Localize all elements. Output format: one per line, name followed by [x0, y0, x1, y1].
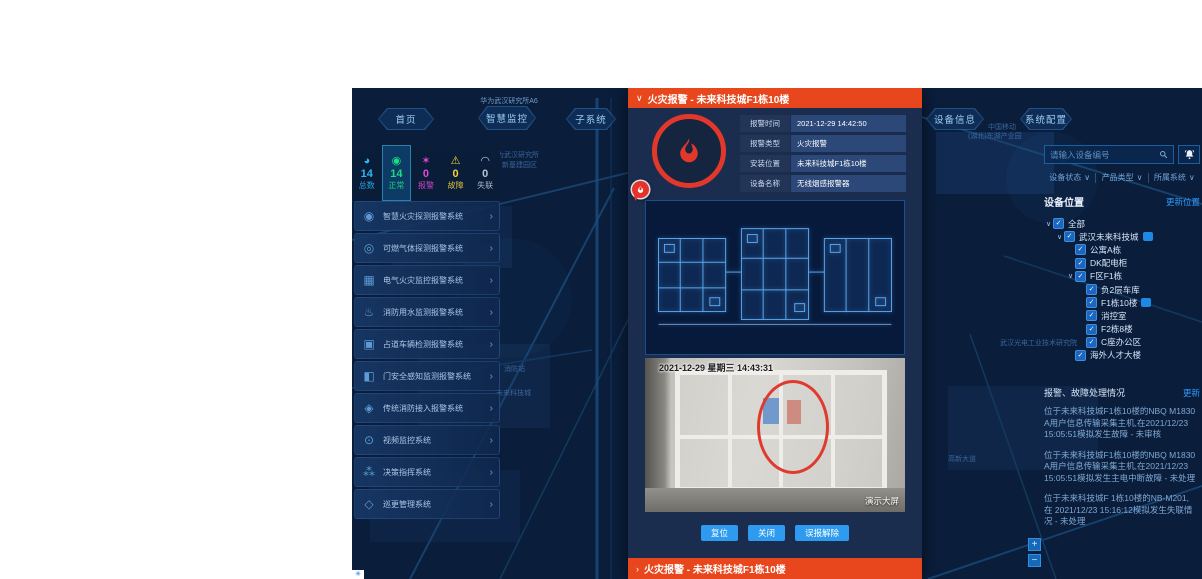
tree-checkbox[interactable]: ✓	[1075, 271, 1086, 282]
nav-home-button[interactable]: 首页	[378, 108, 434, 130]
map-place-label: 未来科技城	[496, 388, 531, 398]
device-location-title: 设备位置	[1044, 194, 1084, 209]
chevron-right-icon: ›	[490, 435, 493, 446]
status-section-title: 报警、故障处理情况	[1044, 386, 1125, 399]
alarm-map-pin[interactable]	[632, 181, 649, 198]
chevron-right-icon: ›	[490, 371, 493, 382]
electric-panel-icon: ▦	[361, 273, 377, 287]
info-row: 报警时间2021-12-29 14:42:50	[740, 115, 906, 132]
tree-node[interactable]: ✓负2层车库	[1044, 283, 1200, 296]
system-label: 传统消防接入报警系统	[383, 403, 484, 414]
stat-label: 总数	[359, 181, 375, 191]
chevron-right-icon: ›	[490, 243, 493, 254]
gas-detector-icon: ◎	[361, 241, 377, 255]
nav-monitor-button[interactable]: 智慧监控	[478, 106, 536, 130]
chevron-right-icon: ›	[490, 307, 493, 318]
camera-snapshot[interactable]: 2021-12-29 星期三 14:43:31 演示大屏	[645, 358, 905, 512]
collapse-caret-icon: ∨	[636, 93, 643, 104]
stat-value: 14	[361, 168, 373, 180]
device-filters: 设备状态∨产品类型∨所属系统∨	[1044, 172, 1200, 183]
camera-icon: ⊙	[361, 433, 377, 447]
stat-alarm[interactable]: ✶0报警	[411, 145, 441, 201]
info-value: 无线烟感报警器	[791, 175, 906, 192]
caret-down-icon: ∨	[1066, 272, 1075, 280]
nav-subsystem-label: 子系统	[567, 109, 615, 129]
search-placeholder: 请输入设备编号	[1050, 149, 1110, 161]
stat-label: 报警	[418, 181, 434, 191]
command-icon: ⁂	[361, 465, 377, 479]
tree-checkbox[interactable]: ✓	[1086, 324, 1097, 335]
hydrant-icon: ◈	[361, 401, 377, 415]
tree-node-label: 负2层车库	[1101, 284, 1140, 296]
alarm-action-buttons: 复位关闭误报解除	[628, 525, 922, 541]
filter-label: 产品类型	[1102, 172, 1134, 183]
caret-down-icon: ∨	[1137, 173, 1143, 182]
tree-checkbox[interactable]: ✓	[1075, 244, 1086, 255]
subsystem-list: ◉智慧火灾探测报警系统›◎可燃气体探测报警系统›▦电气火灾监控报警系统›♨消防用…	[354, 201, 500, 521]
tree-node[interactable]: ✓消控室	[1044, 309, 1200, 322]
stat-fault[interactable]: ⚠0故障	[441, 145, 471, 201]
patrol-icon: ◇	[361, 497, 377, 511]
chevron-right-icon: ›	[490, 275, 493, 286]
tree-node-label: 全部	[1068, 218, 1085, 230]
alarm-info-table: 报警时间2021-12-29 14:42:50报警类型火灾报警安装位置未来科技城…	[740, 115, 906, 192]
nav-subsystem-button[interactable]: 子系统	[566, 108, 616, 130]
nav-home-label: 首页	[379, 109, 433, 129]
caret-down-icon: ∨	[1044, 220, 1053, 228]
tree-checkbox[interactable]: ✓	[1075, 258, 1086, 269]
fire-monitoring-app: 华为武汉研究所新基建园区中国移动(湖北)东湖产业园消防站未来科技城武汉光电工业技…	[352, 88, 1202, 579]
tree-node-label: F1栋10楼	[1101, 297, 1137, 309]
chevron-right-icon: ›	[490, 499, 493, 510]
caret-down-icon: ∨	[1084, 173, 1090, 182]
update-location-link[interactable]: 更新位置	[1166, 196, 1200, 208]
alarm-message: 位于未来科技城F1栋10楼的NBQ M1830 A用户信息传输采集主机,在202…	[1044, 406, 1196, 441]
tree-checkbox[interactable]: ✓	[1086, 310, 1097, 321]
info-value: 2021-12-29 14:42:50	[791, 115, 906, 132]
signal-icon: ◉	[392, 155, 402, 167]
filter-dropdown[interactable]: 所属系统∨	[1149, 172, 1200, 183]
tree-checkbox[interactable]: ✓	[1086, 284, 1097, 295]
node-badge	[1141, 298, 1151, 307]
tree-checkbox[interactable]: ✓	[1086, 297, 1097, 308]
tree-node[interactable]: ∨✓武汉未来科技城	[1044, 230, 1200, 243]
chevron-right-icon: ›	[490, 467, 493, 478]
tree-node[interactable]: ✓F1栋10楼	[1044, 296, 1200, 309]
sidebar-item-system[interactable]: ◎可燃气体探测报警系统›	[354, 233, 500, 263]
sidebar-item-system[interactable]: ◇巡更管理系统›	[354, 489, 500, 519]
system-label: 消防用水监测报警系统	[383, 307, 484, 318]
collapsed-alarm-title: 火灾报警 - 未来科技城F1栋10楼	[644, 561, 786, 576]
alarm-message-list: 位于未来科技城F1栋10楼的NBQ M1830 A用户信息传输采集主机,在202…	[1044, 406, 1200, 528]
chevron-right-icon: ›	[490, 403, 493, 414]
nav-system-config-label: 系统配置	[1021, 109, 1071, 129]
alarm-action-button-2[interactable]: 误报解除	[795, 525, 849, 541]
info-row: 安装位置未来科技城F1栋10楼	[740, 155, 906, 172]
zoom-in-button[interactable]: +	[1028, 538, 1041, 551]
info-row: 设备名称无线烟感报警器	[740, 175, 906, 192]
expand-caret-icon: ›	[636, 564, 639, 574]
alarm-bell-button[interactable]	[1178, 145, 1200, 164]
caret-down-icon: ∨	[1055, 233, 1064, 241]
tree-node-label: F区F1栋	[1090, 270, 1122, 282]
alarm-annotation-circle	[757, 380, 829, 474]
system-label: 电气火灾监控报警系统	[383, 275, 484, 286]
system-label: 门安全感知监测报警系统	[383, 371, 484, 382]
sidebar-item-system[interactable]: ◈传统消防接入报警系统›	[354, 393, 500, 423]
nav-device-info-label: 设备信息	[927, 109, 983, 129]
pie-chart-icon: ◕	[363, 155, 370, 167]
device-panel: 请输入设备编号 设备状态∨产品类型∨所属系统∨ 设备位置 更新位置 ∨✓全部∨✓…	[1044, 145, 1200, 537]
map-place-label: 消防站	[504, 364, 525, 374]
info-label: 安装位置	[740, 155, 790, 172]
map-place-label: 高新大道	[948, 454, 976, 464]
system-label: 可燃气体探测报警系统	[383, 243, 484, 254]
zoom-out-button[interactable]: −	[1028, 554, 1041, 567]
stat-label: 失联	[477, 181, 493, 191]
stat-normal[interactable]: ◉14正常	[382, 145, 412, 201]
system-label: 智慧火灾探测报警系统	[383, 211, 484, 222]
filter-dropdown[interactable]: 产品类型∨	[1096, 172, 1147, 183]
info-value: 未来科技城F1栋10楼	[791, 155, 906, 172]
stat-value: 14	[390, 168, 402, 180]
device-location-tree: ∨✓全部∨✓武汉未来科技城✓公寓A栋✓DK配电柜∨✓F区F1栋✓负2层车库✓F1…	[1044, 217, 1200, 362]
vehicle-icon: ▣	[361, 337, 377, 351]
tree-node-label: DK配电柜	[1090, 257, 1127, 269]
page: 华为武汉研究所新基建园区中国移动(湖北)东湖产业园消防站未来科技城武汉光电工业技…	[0, 0, 1202, 579]
filter-label: 设备状态	[1049, 172, 1081, 183]
filter-dropdown[interactable]: 设备状态∨	[1044, 172, 1095, 183]
fire-alarm-badge	[652, 114, 726, 188]
node-badge	[1143, 232, 1153, 241]
tree-node-label: C座办公区	[1101, 336, 1141, 348]
fire-alarm-modal: ∨ 火灾报警 - 未来科技城F1栋10楼 报警时间2021-12-29 14:4…	[628, 88, 922, 579]
sidebar-item-system[interactable]: ⁂决策指挥系统›	[354, 457, 500, 487]
alarm-message: 位于未来科技城F1栋10楼的NBQ M1830 A用户信息传输采集主机,在202…	[1044, 450, 1196, 485]
flame-icon	[674, 136, 704, 166]
caret-down-icon: ∨	[1189, 173, 1195, 182]
tree-checkbox[interactable]: ✓	[1053, 218, 1064, 229]
alarm-modal-header[interactable]: ∨ 火灾报警 - 未来科技城F1栋10楼	[628, 88, 922, 108]
tree-checkbox[interactable]: ✓	[1064, 231, 1075, 242]
sidebar-item-system[interactable]: ▣占道车辆检测报警系统›	[354, 329, 500, 359]
tree-node[interactable]: ∨✓全部	[1044, 217, 1200, 230]
system-label: 巡更管理系统	[383, 499, 484, 510]
bell-icon	[1183, 148, 1196, 161]
info-row: 报警类型火灾报警	[740, 135, 906, 152]
alarm-modal-title: 火灾报警 - 未来科技城F1栋10楼	[648, 91, 790, 106]
warning-icon: ⚠	[451, 155, 461, 167]
stat-value: 0	[482, 168, 488, 180]
chevron-right-icon: ›	[490, 339, 493, 350]
tree-node-label: 武汉未来科技城	[1079, 231, 1139, 243]
browser-overlay-chip[interactable]: ✳	[352, 570, 364, 579]
map-zoom-controls: + −	[1028, 538, 1041, 567]
sidebar-item-system[interactable]: ◧门安全感知监测报警系统›	[354, 361, 500, 391]
floor-plan-image[interactable]	[645, 200, 905, 355]
info-label: 报警类型	[740, 135, 790, 152]
device-status-summary: ◕14总数◉14正常✶0报警⚠0故障◠0失联	[352, 145, 500, 202]
tree-node[interactable]: ∨✓F区F1栋	[1044, 270, 1200, 283]
nav-device-info-button[interactable]: 设备信息	[926, 108, 984, 130]
nav-monitor-label: 智慧监控	[479, 107, 535, 129]
wifi-icon: ◠	[480, 155, 490, 167]
tree-node[interactable]: ✓C座办公区	[1044, 336, 1200, 349]
chevron-right-icon: ›	[490, 211, 493, 222]
tree-node-label: 消控室	[1101, 310, 1127, 322]
door-icon: ◧	[361, 369, 377, 383]
sidebar-item-system[interactable]: ♨消防用水监测报警系统›	[354, 297, 500, 327]
camera-watermark: 演示大屏	[865, 495, 899, 507]
stat-label: 正常	[388, 181, 404, 191]
camera-timestamp: 2021-12-29 星期三 14:43:31	[659, 361, 773, 374]
tree-checkbox[interactable]: ✓	[1086, 337, 1097, 348]
nav-system-config-button[interactable]: 系统配置	[1020, 108, 1072, 130]
sidebar-item-system[interactable]: ◉智慧火灾探测报警系统›	[354, 201, 500, 231]
tree-node[interactable]: ✓海外人才大楼	[1044, 349, 1200, 362]
map-place-label: 新基建园区	[502, 160, 537, 170]
site-name-label: 华为武汉研究所A6	[464, 96, 554, 106]
filter-label: 所属系统	[1154, 172, 1186, 183]
info-value: 火灾报警	[791, 135, 906, 152]
tree-checkbox[interactable]: ✓	[1075, 350, 1086, 361]
tree-node[interactable]: ✓F2栋8楼	[1044, 323, 1200, 336]
stat-offline[interactable]: ◠0失联	[470, 145, 500, 201]
info-label: 报警时间	[740, 115, 790, 132]
stat-value: 0	[423, 168, 429, 180]
stat-total[interactable]: ◕14总数	[352, 145, 382, 201]
sidebar-item-system[interactable]: ▦电气火灾监控报警系统›	[354, 265, 500, 295]
search-input[interactable]: 请输入设备编号	[1044, 145, 1174, 164]
water-monitor-icon: ♨	[361, 305, 377, 319]
stat-label: 故障	[448, 181, 464, 191]
sidebar-item-system[interactable]: ⊙视频监控系统›	[354, 425, 500, 455]
tree-node-label: F2栋8楼	[1101, 323, 1133, 335]
system-label: 占道车辆检测报警系统	[383, 339, 484, 350]
tree-node-label: 海外人才大楼	[1090, 349, 1141, 361]
tree-node[interactable]: ✓DK配电柜	[1044, 257, 1200, 270]
alarm-action-button-0[interactable]: 复位	[701, 525, 738, 541]
alarm-star-icon: ✶	[421, 155, 430, 167]
stat-value: 0	[453, 168, 459, 180]
tree-node[interactable]: ✓公寓A栋	[1044, 243, 1200, 256]
fire-icon	[636, 185, 645, 194]
alarm-action-button-1[interactable]: 关闭	[748, 525, 785, 541]
search-icon	[1159, 150, 1168, 159]
tree-node-label: 公寓A栋	[1090, 244, 1121, 256]
info-label: 设备名称	[740, 175, 790, 192]
refresh-link[interactable]: 更新	[1183, 387, 1200, 399]
smoke-detector-icon: ◉	[361, 209, 377, 223]
map-place-label: (湖北)东湖产业园	[968, 131, 1022, 141]
system-label: 视频监控系统	[383, 435, 484, 446]
system-label: 决策指挥系统	[383, 467, 484, 478]
alarm-message: 位于未来科技城F 1栋10楼的NB-M201,在 2021/12/23 15:1…	[1044, 493, 1196, 528]
collapsed-alarm-header[interactable]: › 火灾报警 - 未来科技城F1栋10楼	[628, 558, 922, 579]
